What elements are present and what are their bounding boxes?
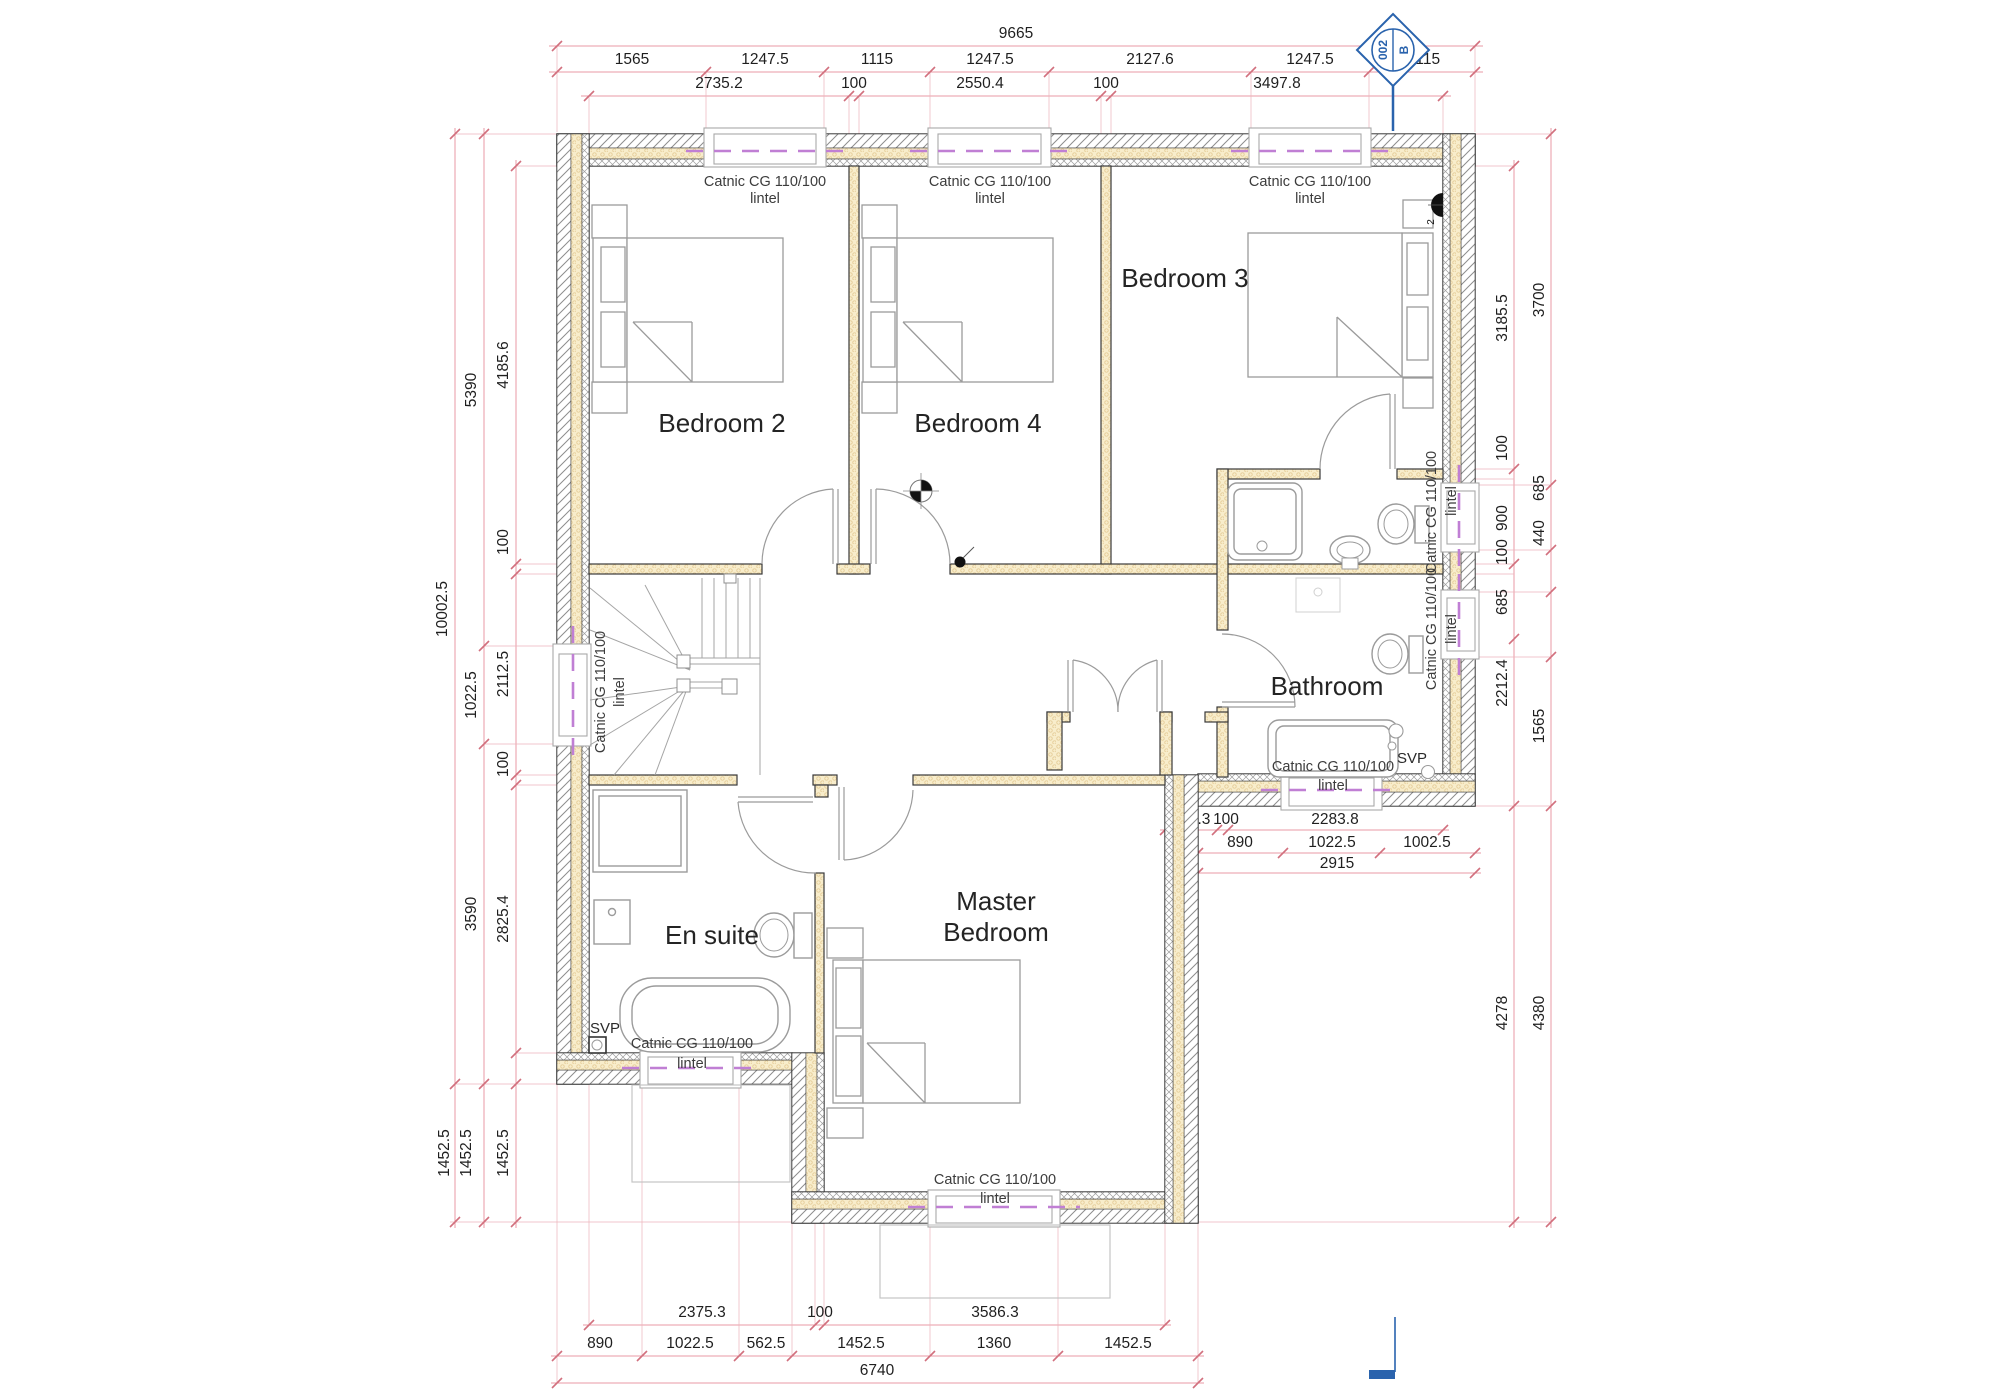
lintel-label: Catnic CG 110/100 <box>1272 759 1394 775</box>
door-cupboard-double <box>1068 660 1162 712</box>
dim-label: 100 <box>1494 435 1511 461</box>
dim-label: 1452.5 <box>458 1129 475 1176</box>
lintel-label: Catnic CG 110/100 <box>593 631 609 753</box>
bed-bedroom2 <box>592 205 783 413</box>
dim-label: 900 <box>1494 505 1511 531</box>
bathroom-fixtures <box>1228 483 1435 779</box>
dim-label: 3590 <box>463 896 480 931</box>
dim-label: 1452.5 <box>837 1335 884 1352</box>
bed-master <box>827 928 1020 1138</box>
dim-label: 1022.5 <box>666 1335 713 1352</box>
room-label-bedroom3: Bedroom 3 <box>1121 263 1248 293</box>
dim-label: 3185.5 <box>1494 294 1511 341</box>
svp-label: SVP <box>1397 750 1427 767</box>
dim-label: 1247.5 <box>741 51 788 68</box>
dim-label: 1360 <box>977 1335 1012 1352</box>
dim-label: 2212.4 <box>1494 659 1511 707</box>
dim-label: 10002.5 <box>434 581 451 637</box>
dim-label: 440 <box>1531 520 1548 546</box>
toilet <box>1372 634 1423 674</box>
radiator-tag: 2 <box>1426 219 1437 225</box>
corner-mark <box>1369 1317 1395 1379</box>
ceiling-point-symbol <box>903 473 939 509</box>
dim-label: 890 <box>1227 834 1253 851</box>
dim-label: 1452.5 <box>436 1129 453 1176</box>
dim-label: 2127.6 <box>1126 51 1173 68</box>
dim-label: 4380 <box>1531 995 1548 1030</box>
lintel-label: Catnic CG 110/100 <box>704 174 826 190</box>
dim-label: 9665 <box>999 25 1033 42</box>
wash-basin-faint <box>1296 578 1340 612</box>
lintel-label: Catnic CG 110/100 <box>1249 174 1371 190</box>
dim-label: 6740 <box>860 1362 895 1379</box>
toilet <box>754 913 812 958</box>
dim-label: 100 <box>841 75 867 92</box>
door-bedroom2 <box>762 489 838 564</box>
door-bedroom3 <box>1320 394 1395 469</box>
dim-label: 1247.5 <box>1286 51 1333 68</box>
dim-label: 2550.4 <box>956 75 1004 92</box>
section-marker-number: 002 <box>1376 40 1390 60</box>
dim-label: 1247.5 <box>966 51 1013 68</box>
dim-label: 1565 <box>1531 709 1548 743</box>
lintel-label: lintel <box>750 191 780 207</box>
room-label-bedroom2: Bedroom 2 <box>658 408 785 438</box>
dim-label: 4185.6 <box>495 341 512 388</box>
dim-label: 562.5 <box>747 1335 786 1352</box>
lintel-label: Catnic CG 110/100 <box>934 1172 1056 1188</box>
lintel-label: lintel <box>1295 191 1325 207</box>
lintel-label: lintel <box>980 1191 1010 1207</box>
dim-label: 1002.5 <box>1403 834 1450 851</box>
dim-label: 685 <box>1531 475 1548 501</box>
dim-label: 1022.5 <box>1308 834 1355 851</box>
dim-label: 100 <box>1093 75 1119 92</box>
dim-label: 890 <box>587 1335 613 1352</box>
lintel-label: lintel <box>677 1056 707 1072</box>
section-marker-letter: B <box>1397 45 1411 54</box>
lintel-label: Catnic CG 110/100 <box>1424 568 1440 690</box>
bed-bedroom4 <box>862 205 1053 413</box>
shower-tray <box>1228 483 1302 560</box>
dim-label: 2735.2 <box>695 75 742 92</box>
dim-label: 4278 <box>1494 996 1511 1030</box>
dim-label: 100 <box>807 1304 833 1321</box>
bed-bedroom3 <box>1248 200 1433 408</box>
svp-box <box>589 1037 606 1053</box>
lintel-label: lintel <box>975 191 1005 207</box>
svp-label: SVP <box>590 1020 620 1037</box>
dim-label: 3700 <box>1531 282 1548 317</box>
svp-circle <box>1422 766 1435 779</box>
dim-label: 685 <box>1494 589 1511 615</box>
dim-label: 100 <box>1494 539 1511 565</box>
floor-plan-drawing: 9665 1565 1247.5 1115 1247.5 2127.6 1247… <box>0 0 2000 1400</box>
dim-label: 100 <box>1213 811 1239 828</box>
dim-label: 5390 <box>463 372 480 407</box>
lintel-label: Catnic CG 110/100 <box>631 1036 753 1052</box>
dim-label: 2112.5 <box>495 651 512 697</box>
lintel-label: lintel <box>1318 778 1348 794</box>
floor-plan-sheet: 9665 1565 1247.5 1115 1247.5 2127.6 1247… <box>0 0 2000 1400</box>
dim-label: 2283.8 <box>1311 811 1358 828</box>
shower-tray <box>593 790 687 872</box>
room-label-bedroom4: Bedroom 4 <box>914 408 1041 438</box>
room-label-ensuite: En suite <box>665 920 759 950</box>
dim-label: 2915 <box>1320 855 1354 872</box>
lintel-label: lintel <box>1444 486 1460 516</box>
door-bedroom4 <box>871 489 950 564</box>
lintel-label: Catnic CG 110/100 <box>929 174 1051 190</box>
dim-label: 3586.3 <box>971 1304 1018 1321</box>
dim-label: 3497.8 <box>1253 75 1300 92</box>
lintel-label: lintel <box>612 677 628 707</box>
dim-label: 1452.5 <box>1104 1335 1151 1352</box>
toilet <box>1378 504 1429 544</box>
dim-label: 100 <box>495 529 512 555</box>
dim-label: 1452.5 <box>495 1129 512 1176</box>
dim-label: 1115 <box>861 51 893 68</box>
room-label-master-line2: Bedroom <box>943 917 1049 947</box>
lintel-label: Catnic CG 110/100 <box>1424 451 1440 573</box>
door-ensuite <box>738 797 816 873</box>
room-label-master-line1: Master <box>956 886 1036 916</box>
dim-label: 2825.4 <box>495 895 512 943</box>
lintel-label: lintel <box>1444 614 1460 644</box>
door-master <box>839 787 913 860</box>
room-label-bathroom: Bathroom <box>1271 671 1384 701</box>
dim-label: 2375.3 <box>678 1304 725 1321</box>
wash-basin <box>594 900 630 944</box>
dim-label: 100 <box>495 751 512 777</box>
stairs <box>590 574 760 775</box>
dim-label: 1022.5 <box>463 671 480 718</box>
dim-label: 1565 <box>615 51 649 68</box>
